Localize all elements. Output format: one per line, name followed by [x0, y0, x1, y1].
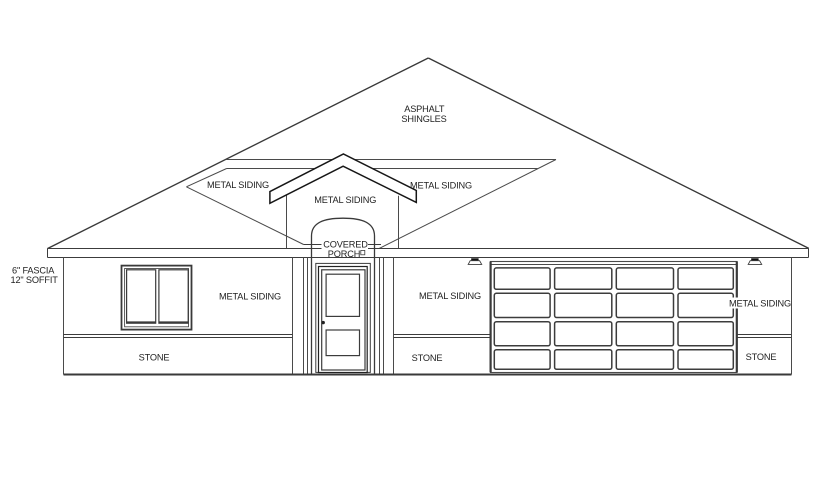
svg-text:STONE: STONE: [139, 353, 170, 363]
svg-text:SHINGLES: SHINGLES: [401, 114, 446, 124]
svg-text:STONE: STONE: [412, 353, 443, 363]
svg-text:METAL SIDING: METAL SIDING: [207, 180, 269, 190]
svg-text:METAL SIDING: METAL SIDING: [314, 195, 376, 205]
svg-text:ASPHALT: ASPHALT: [404, 104, 445, 114]
svg-text:PORCH: PORCH: [328, 249, 360, 259]
svg-text:METAL SIDING: METAL SIDING: [729, 299, 791, 309]
svg-text:12" SOFFIT: 12" SOFFIT: [11, 275, 59, 285]
svg-text:6" FASCIA: 6" FASCIA: [12, 266, 55, 276]
svg-text:METAL SIDING: METAL SIDING: [410, 181, 472, 191]
svg-text:METAL SIDING: METAL SIDING: [219, 292, 281, 302]
svg-text:STONE: STONE: [746, 352, 777, 362]
svg-text:METAL SIDING: METAL SIDING: [419, 291, 481, 301]
